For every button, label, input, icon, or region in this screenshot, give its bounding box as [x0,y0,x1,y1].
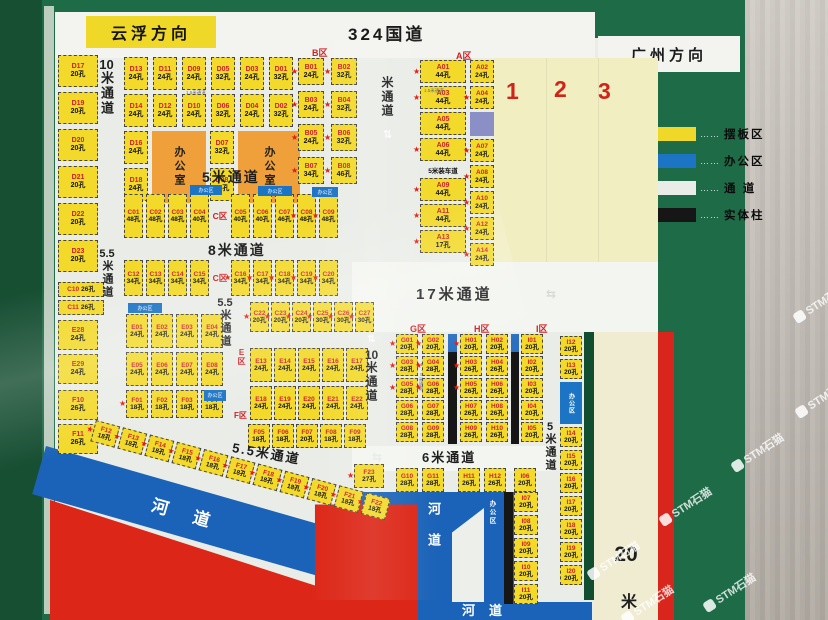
pillar-strip [504,492,513,604]
stall-e05: E0524孔 [126,352,148,386]
stall-group-e-left: E2824孔E2924孔 [58,320,98,384]
star-icon: ★ [264,313,271,321]
star-icon: ★ [224,274,231,282]
stall-c13: C1334孔 [146,260,165,296]
legend-leader-dots: …… [700,129,720,139]
stall-c02: C0248孔 [146,194,165,238]
star-icon: ★ [248,468,257,478]
stall-e01: E0124孔 [126,314,148,348]
stall-group-bottom-row: G1028孔G1128孔H1126孔H1226孔I0620孔 [396,468,536,492]
stall-i16: I1620孔 [560,473,582,493]
stall-i03: I0320孔 [521,378,543,398]
legend-leader-dots: …… [700,210,720,220]
star-icon: ★ [291,68,298,76]
stall-b02: ★B0232孔 [331,58,357,85]
office-area-mini: 办公区 [312,187,338,197]
star-icon: ★ [413,238,420,246]
stall-i12: I1220孔 [560,336,582,356]
stall-h01: ★H0120孔 [460,334,482,354]
zone-label-a: A区 [456,49,472,62]
stall-g08: G0828孔 [396,422,418,442]
zone-label-f: F区 [234,410,247,421]
stall-e08: E0824孔 [201,352,223,386]
road-324-title: 324国道 [348,20,425,45]
stall-a14: ★A1424孔 [470,243,494,266]
stall-b05: ★B0524孔 [298,124,324,151]
stall-i04: I0420孔 [521,400,543,420]
office-area-vertical-label: 办公区 [486,500,496,526]
stall-d21: D2120孔 [58,166,98,198]
stall-d07: D0732孔 [210,131,234,164]
channel-1-5m-small: 1.5米通道 [418,362,424,391]
stall-a04: ★A0424孔 [470,86,494,109]
legend-label: 摆板区 [724,126,765,142]
zone-label-h: H区 [474,322,490,335]
star-icon: ★ [246,274,253,282]
star-icon: ★ [413,68,420,76]
stall-d13: D1324孔 [124,57,148,90]
stall-group-a-right: A0224孔★A0424孔★A0724孔★A0824孔★A1024孔★A1224… [470,60,494,266]
stall-a12: ★A1224孔 [470,217,494,240]
stall-group-g-col2: ★G0220孔★G0428孔★G0628孔G0728孔G0928孔 [422,334,444,442]
stall-i17: I1720孔 [560,496,582,516]
zone-label-e: E区 [236,348,247,367]
market-map-photo: 云浮方向 324国道 广州方向 1 2 3 河道 河道 办公区 河道 办公室 办… [0,0,828,620]
stall-d05: D0532孔 [211,57,235,90]
channel-5m-right: 5 米通道 [542,422,558,472]
channel-10m-left: 10 米通道 [97,58,116,116]
office-block [470,112,494,136]
stall-i02: I0220孔 [521,356,543,376]
star-icon: ★ [324,101,331,109]
stall-e21: E2124孔 [322,386,344,420]
star-icon: ★ [463,147,470,155]
stall-c27: ★C2730孔 [355,302,374,332]
star-icon: ★ [302,483,311,493]
river-vertical-label: 河道 [424,502,443,564]
channel-1-5m-small: 1.5米通道 [424,88,444,94]
watermark-logo-icon [730,458,745,473]
stall-c04: C0440孔 [190,194,209,238]
stall-d19: D1920孔 [58,92,98,124]
stall-e16: E1624孔 [322,348,344,382]
stall-group-f23: ★F2327孔 [354,464,384,488]
channel-1-5m-small: 1.5米通道 [186,90,206,96]
stall-b04: ★B0432孔 [331,91,357,118]
stall-c12: C1234孔 [124,260,143,296]
channel-arrow-icon: ⇆ [546,287,556,301]
stall-group-i-col: I0120孔I0220孔I0320孔I0420孔I0520孔 [521,334,543,442]
legend-item: ……实体柱 [658,207,765,223]
channel-5-5m-v2: 5.5 米通道 [217,298,233,348]
stall-group-c-left: C1026孔C1126孔 [58,282,104,315]
channel-5-5m-v1: 5.5 米通道 [99,249,115,299]
stall-i10: I1020孔 [514,561,538,581]
office-area-mini: 办公区 [204,390,226,401]
stall-group-f-left: F1026孔F1126孔 [58,390,98,454]
stall-group-d-row2: D1424孔D1224孔D1024孔D0632孔D0424孔D0232孔 [124,94,293,127]
stall-g04: ★G0428孔 [422,356,444,376]
star-icon: ★ [463,225,470,233]
dark-green-strip [584,332,594,600]
stall-c06: C0640孔 [253,194,272,238]
stall-a06: ★A0644孔 [420,138,466,161]
stall-g10: G1028孔 [396,468,418,492]
stall-i18: I1820孔 [560,519,582,539]
right-red-strip [658,332,674,620]
stall-i08: I0820孔 [514,515,538,535]
star-icon: ★ [413,186,420,194]
zone-label-i: I区 [536,322,548,335]
stall-c14: C1434孔 [168,260,187,296]
stall-c10: C1026孔 [58,282,104,297]
stall-g06: ★G0628孔 [422,378,444,398]
star-icon: ★ [453,384,460,392]
stall-d11: D1124孔 [153,57,177,90]
stall-b01: ★B0124孔 [298,58,324,85]
office-area-mini: 办公区 [128,303,162,313]
stall-e07: E0724孔 [176,352,198,386]
zone-label-g: G区 [410,322,426,335]
zone-divider [546,58,547,264]
stall-d06: D0632孔 [211,94,235,127]
star-icon: ★ [312,274,319,282]
pillar-strip [511,334,519,444]
office-block-label: 办公区 [567,393,576,414]
zone-number-3: 3 [598,78,611,105]
stall-a08: ★A0824孔 [470,165,494,188]
stall-e14: E1424孔 [274,348,296,382]
stall-c09: ★C0948孔 [319,194,338,238]
board-corner-patch [595,12,658,38]
stall-d16: D1624孔 [124,131,148,164]
stall-a11: ★A1144孔 [420,204,466,227]
stall-group-d-row1: D1324孔D1124孔D0924孔D0532孔D0324孔D0132孔 [124,57,293,90]
stall-h04: H0426孔 [486,356,508,376]
stall-group-c-row1: C0148孔C0248孔C0348孔C0440孔C区C0540孔C0640孔C0… [124,194,338,238]
channel-17m-band [352,262,658,332]
stall-a13: ★A1317孔 [420,230,466,253]
zone-number-2: 2 [554,76,567,103]
stall-h09: H0926孔 [460,422,482,442]
stall-group-h-col1: ★H0120孔★H0326孔★H0526孔H0726孔H0926孔 [460,334,482,442]
stall-i13: I1320孔 [560,359,582,379]
legend-label: 通 道 [724,180,756,196]
stall-c11: C1126孔 [58,300,104,315]
legend-swatch [658,154,696,168]
stall-g11: G1128孔 [422,468,444,492]
star-icon: ★ [413,146,420,154]
river-bottom [514,602,592,620]
office-label: 办公室 [261,146,277,188]
star-icon: ★ [413,94,420,102]
star-icon: ★ [324,134,331,142]
legend-leader-dots: …… [700,183,720,193]
star-icon: ★ [324,167,331,175]
channel-arrow-icon: ⇅ [383,128,392,141]
stall-c15: C1534孔 [190,260,209,296]
star-icon: ★ [329,490,338,500]
stall-f23: ★F2327孔 [354,464,384,488]
stall-f02: F0218孔 [151,390,173,418]
stall-b03: ★B0324孔 [298,91,324,118]
stall-f09: F0918孔 [344,424,366,448]
channel-arrow-icon: ⇅ [367,334,375,345]
legend-swatch [658,208,696,222]
stall-b08: ★B0846孔 [331,157,357,184]
stall-h06: H0626孔 [486,378,508,398]
stall-d23: D2320孔 [58,240,98,272]
stall-h07: H0726孔 [460,400,482,420]
stall-e28: E2824孔 [58,320,98,350]
stall-i05: I0520孔 [521,422,543,442]
stall-a09: ★A0944孔 [420,178,466,201]
stall-f03: F0318孔 [176,390,198,418]
star-icon: ★ [463,199,470,207]
star-icon: ★ [463,94,470,102]
stall-d22: D2220孔 [58,203,98,235]
stall-h10: H1026孔 [486,422,508,442]
stall-h08: H0826孔 [486,400,508,420]
stall-c01: C0148孔 [124,194,143,238]
stall-i15: I1520孔 [560,450,582,470]
legend-item: ……办公区 [658,153,765,169]
stall-f10: F1026孔 [58,390,98,420]
stall-group-e-row2: E0524孔E0624孔E0724孔E0824孔 [126,352,223,386]
stall-e15: E1524孔 [298,348,320,382]
star-icon: ★ [268,274,275,282]
board-left-edge [0,0,42,620]
stall-h03: ★H0326孔 [460,356,482,376]
stall-b07: ★B0734孔 [298,157,324,184]
star-icon: ★ [166,447,175,457]
direction-yunfu: 云浮方向 [86,16,216,48]
star-icon: ★ [324,68,331,76]
office-label: 办公室 [171,146,187,188]
star-icon: ★ [389,362,396,370]
stall-c03: C0348孔 [168,194,187,238]
stall-h05: ★H0526孔 [460,378,482,398]
stall-c20: ★C2034孔 [319,260,338,296]
legend-item: ……摆板区 [658,126,765,142]
legend-swatch [658,181,696,195]
stall-e06: E0624孔 [151,352,173,386]
stall-a01: ★A0144孔 [420,60,466,83]
stall-e19: E1924孔 [274,386,296,420]
zone-number-1: 1 [506,78,519,105]
stall-e13: E1324孔 [250,348,272,382]
channel-mid-vertical: 米通道 ⇅ [379,76,396,141]
office-area-mini: 办公区 [258,186,292,196]
legend-label: 办公区 [724,153,765,169]
star-icon: ★ [453,340,460,348]
stall-i11: I1120孔 [514,584,538,604]
stall-i01: I0120孔 [521,334,543,354]
star-icon: ★ [221,461,230,471]
zone-inline-label: 5米装车道 [420,164,466,175]
stall-i14: I1420孔 [560,427,582,447]
stall-group-e-row4: E1824孔E1924孔E2024孔E2124孔E2224孔 [250,386,368,420]
stall-e29: E2924孔 [58,354,98,384]
stall-d09: D0924孔 [182,57,206,90]
stall-g02: ★G0220孔 [422,334,444,354]
star-icon: ★ [112,432,121,442]
stall-f08: F0818孔 [320,424,342,448]
star-icon: ★ [291,101,298,109]
star-icon: ★ [85,425,94,435]
channel-10m-ghi: ⇅ 10 米通道 [363,334,380,403]
stall-g06: G0628孔 [396,400,418,420]
stall-d02: D0232孔 [269,94,293,127]
stall-group-d-left: D1720孔D1920孔D2020孔D2120孔D2220孔D2320孔 [58,55,98,272]
star-icon: ★ [415,340,422,348]
stall-group-i-lower: I0720孔I0820孔I0920孔I1020孔I1120孔 [514,492,538,604]
stall-d12: D1224孔 [153,94,177,127]
legend: ……摆板区……办公区……通 道……实体柱 [658,126,765,223]
stall-a07: ★A0724孔 [470,139,494,162]
stall-d14: D1424孔 [124,94,148,127]
watermark-logo-icon [702,598,717,613]
stall-i20: I2020孔 [560,565,582,585]
legend-swatch [658,127,696,141]
legend-label: 实体柱 [724,207,765,223]
stall-c05: C0540孔 [231,194,250,238]
star-icon: ★ [139,439,148,449]
star-icon: ★ [275,476,284,486]
star-icon: ★ [463,173,470,181]
star-icon: ★ [285,313,292,321]
stall-a05: A0544孔 [420,112,466,135]
star-icon: ★ [119,400,126,408]
stall-group-d-col-a: D1624孔D1824孔 [124,131,148,201]
stall-a10: ★A1024孔 [470,191,494,214]
stall-f07: F0720孔 [296,424,318,448]
stall-i09: I0920孔 [514,538,538,558]
stall-i07: I0720孔 [514,492,538,512]
stall-d20: D2020孔 [58,129,98,161]
stall-g07: G0728孔 [422,400,444,420]
star-icon: ★ [413,212,420,220]
star-icon: ★ [243,313,250,321]
stall-d17: D1720孔 [58,55,98,87]
stall-group-c-row2: C1234孔C1334孔C1434孔C1534孔C区★C1634孔★C1734孔… [124,260,338,296]
star-icon: ★ [389,340,396,348]
zone-label-b: B区 [312,46,328,59]
stall-d01: D0132孔 [269,57,293,90]
stall-group-i-right: I1220孔I1320孔办公区I1420孔I1520孔I1620孔I1720孔I… [560,336,582,585]
stall-group-e-row3: E1324孔E1424孔E1524孔E1624孔E1724孔 [250,348,368,382]
office-block: 办公区 [560,382,582,424]
stall-a02: A0224孔 [470,60,494,83]
stall-h12: H1226孔 [484,468,506,492]
stall-h02: H0220孔 [486,334,508,354]
stall-b06: ★B0632孔 [331,124,357,151]
star-icon: ★ [306,313,313,321]
star-icon: ★ [194,454,203,464]
stall-i06: I0620孔 [514,468,536,492]
star-icon: ★ [348,313,355,321]
stall-d04: D0424孔 [240,94,264,127]
stall-e03: E0324孔 [176,314,198,348]
channel-arrow-icon: ⇆ [372,450,382,464]
channel-5m-top: 5米通道 [202,167,260,187]
channel-6m: 6米通道 [422,447,476,466]
legend-leader-dots: …… [700,156,720,166]
stall-e02: E0224孔 [151,314,173,348]
star-icon: ★ [463,251,470,259]
channel-17m: 17米通道 [416,283,493,304]
star-icon: ★ [389,384,396,392]
stall-group-c-right: ★C2220孔★C2320孔★C2420孔★C2530孔★C2630孔★C273… [250,302,374,332]
star-icon: ★ [327,313,334,321]
star-icon: ★ [290,212,297,220]
stall-g09: G0928孔 [422,422,444,442]
stall-e20: E2024孔 [298,386,320,420]
stall-d10: D1024孔 [182,94,206,127]
stall-group-e-row1: E0124孔E0224孔E0324孔E0424孔 [126,314,223,348]
star-icon: ★ [291,167,298,175]
star-icon: ★ [453,362,460,370]
stall-group-b: ★B0124孔★B0232孔★B0324孔★B0432孔★B0524孔★B063… [298,58,358,184]
stall-e18: E1824孔 [250,386,272,420]
stall-group-h-col2: H0220孔H0426孔H0626孔H0826孔H1026孔 [486,334,508,442]
star-icon: ★ [290,274,297,282]
channel-8m: 8米通道 [208,240,266,260]
star-icon: ★ [347,472,354,480]
stall-d03: D0324孔 [240,57,264,90]
zone-inline-label: C区 [212,194,228,238]
legend-item: ……通 道 [658,180,765,196]
star-icon: ★ [312,212,319,220]
stall-h11: H1126孔 [458,468,480,492]
stall-i19: I1920孔 [560,542,582,562]
stall-f01: ★F0118孔 [126,390,148,418]
star-icon: ★ [356,497,365,507]
star-icon: ★ [291,134,298,142]
